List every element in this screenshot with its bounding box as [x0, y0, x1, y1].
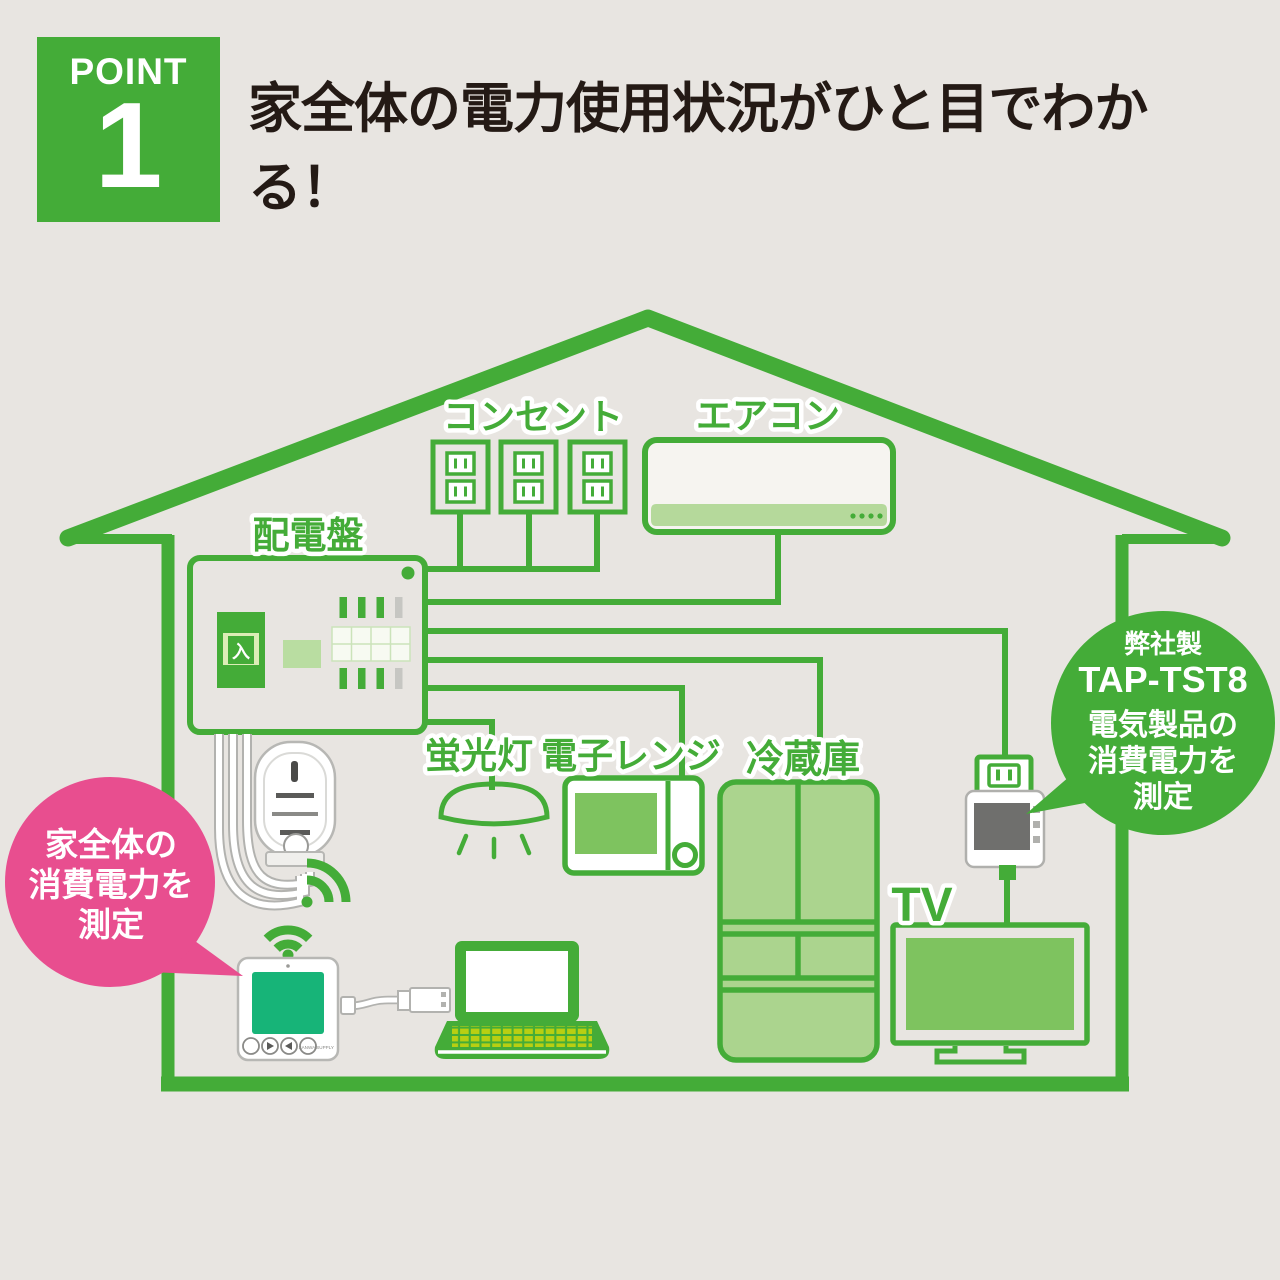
panel-indicator-dot	[402, 567, 415, 580]
outlet-icon	[433, 442, 488, 512]
tap-tst8-screen	[974, 803, 1030, 850]
outlets-group	[433, 442, 625, 512]
callout-line: 消費電力を	[29, 865, 194, 905]
label-microwave: 電子レンジ	[541, 735, 721, 776]
sensor-unit-icon	[255, 742, 335, 866]
whole-house-callout-text: 家全体の 消費電力を 測定	[5, 820, 217, 950]
tv-stand	[937, 1046, 1024, 1062]
tv-icon	[893, 925, 1087, 1062]
tap-callout-text: 弊社製 TAP-TST8 電気製品の 消費電力を 測定	[1051, 610, 1275, 836]
fridge-icon	[720, 782, 877, 1060]
laptop-icon	[435, 941, 610, 1059]
callout-line: 測定	[78, 905, 144, 945]
label-panel: 配電盤	[253, 515, 364, 556]
laptop-keyboard	[452, 1026, 592, 1047]
light-icon	[441, 784, 547, 857]
label-outlets: コンセント	[443, 396, 623, 437]
display-screen	[252, 972, 324, 1034]
display-unit-icon: SANWA SUPPLY	[238, 958, 338, 1060]
wifi-icon	[267, 930, 309, 960]
usb-cable-icon	[341, 988, 450, 1014]
label-tv: TV	[891, 879, 952, 932]
label-light: 蛍光灯	[425, 735, 533, 776]
outlet-icon	[570, 442, 625, 512]
callout-line: 家全体の	[45, 825, 177, 865]
callout-line: 電気製品の	[1088, 708, 1238, 744]
wire-outlets	[422, 512, 599, 572]
outlet-icon	[501, 442, 556, 512]
label-fridge: 冷蔵庫	[746, 739, 860, 781]
callout-maker: 弊社製	[1124, 630, 1202, 659]
breaker-switch-label: 入	[232, 642, 250, 662]
callout-line: 測定	[1133, 780, 1193, 816]
callout-line: 消費電力を	[1088, 744, 1238, 780]
distribution-panel-icon: 入	[190, 558, 425, 732]
display-brand-label: SANWA SUPPLY	[299, 1045, 334, 1050]
callout-model: TAP-TST8	[1078, 659, 1247, 700]
microwave-icon	[565, 778, 702, 873]
label-aircon: エアコン	[696, 395, 840, 436]
aircon-icon	[645, 440, 893, 532]
tap-tst8-group	[966, 757, 1044, 927]
